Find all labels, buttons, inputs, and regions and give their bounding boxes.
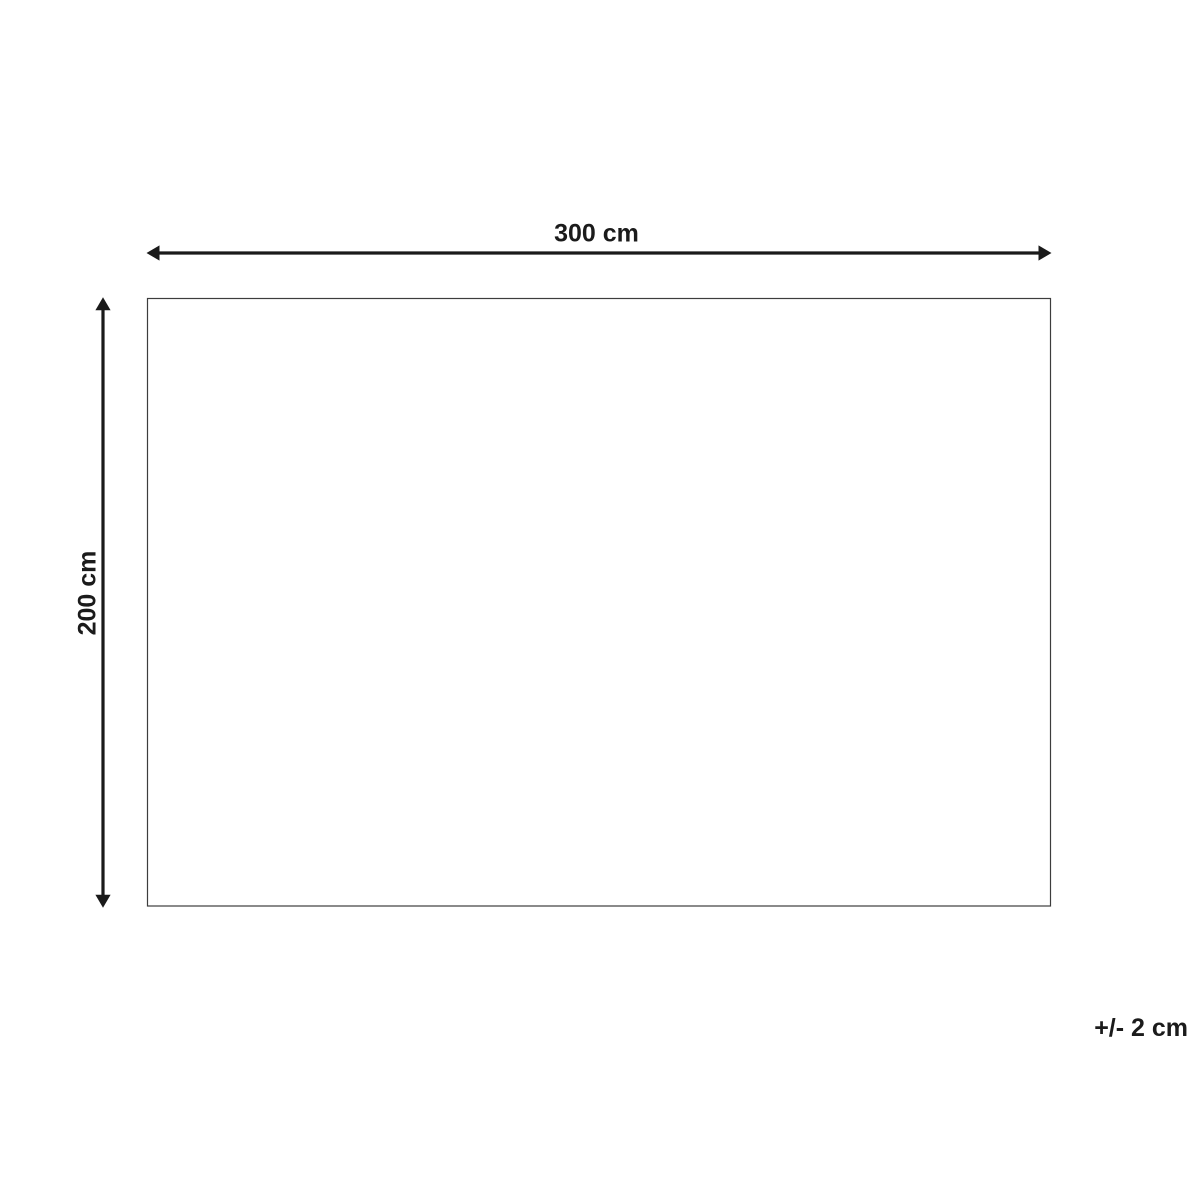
svg-text:200 cm: 200 cm (74, 551, 102, 636)
svg-text:+/- 2 cm: +/- 2 cm (1094, 1014, 1188, 1042)
svg-text:300 cm: 300 cm (554, 220, 639, 248)
